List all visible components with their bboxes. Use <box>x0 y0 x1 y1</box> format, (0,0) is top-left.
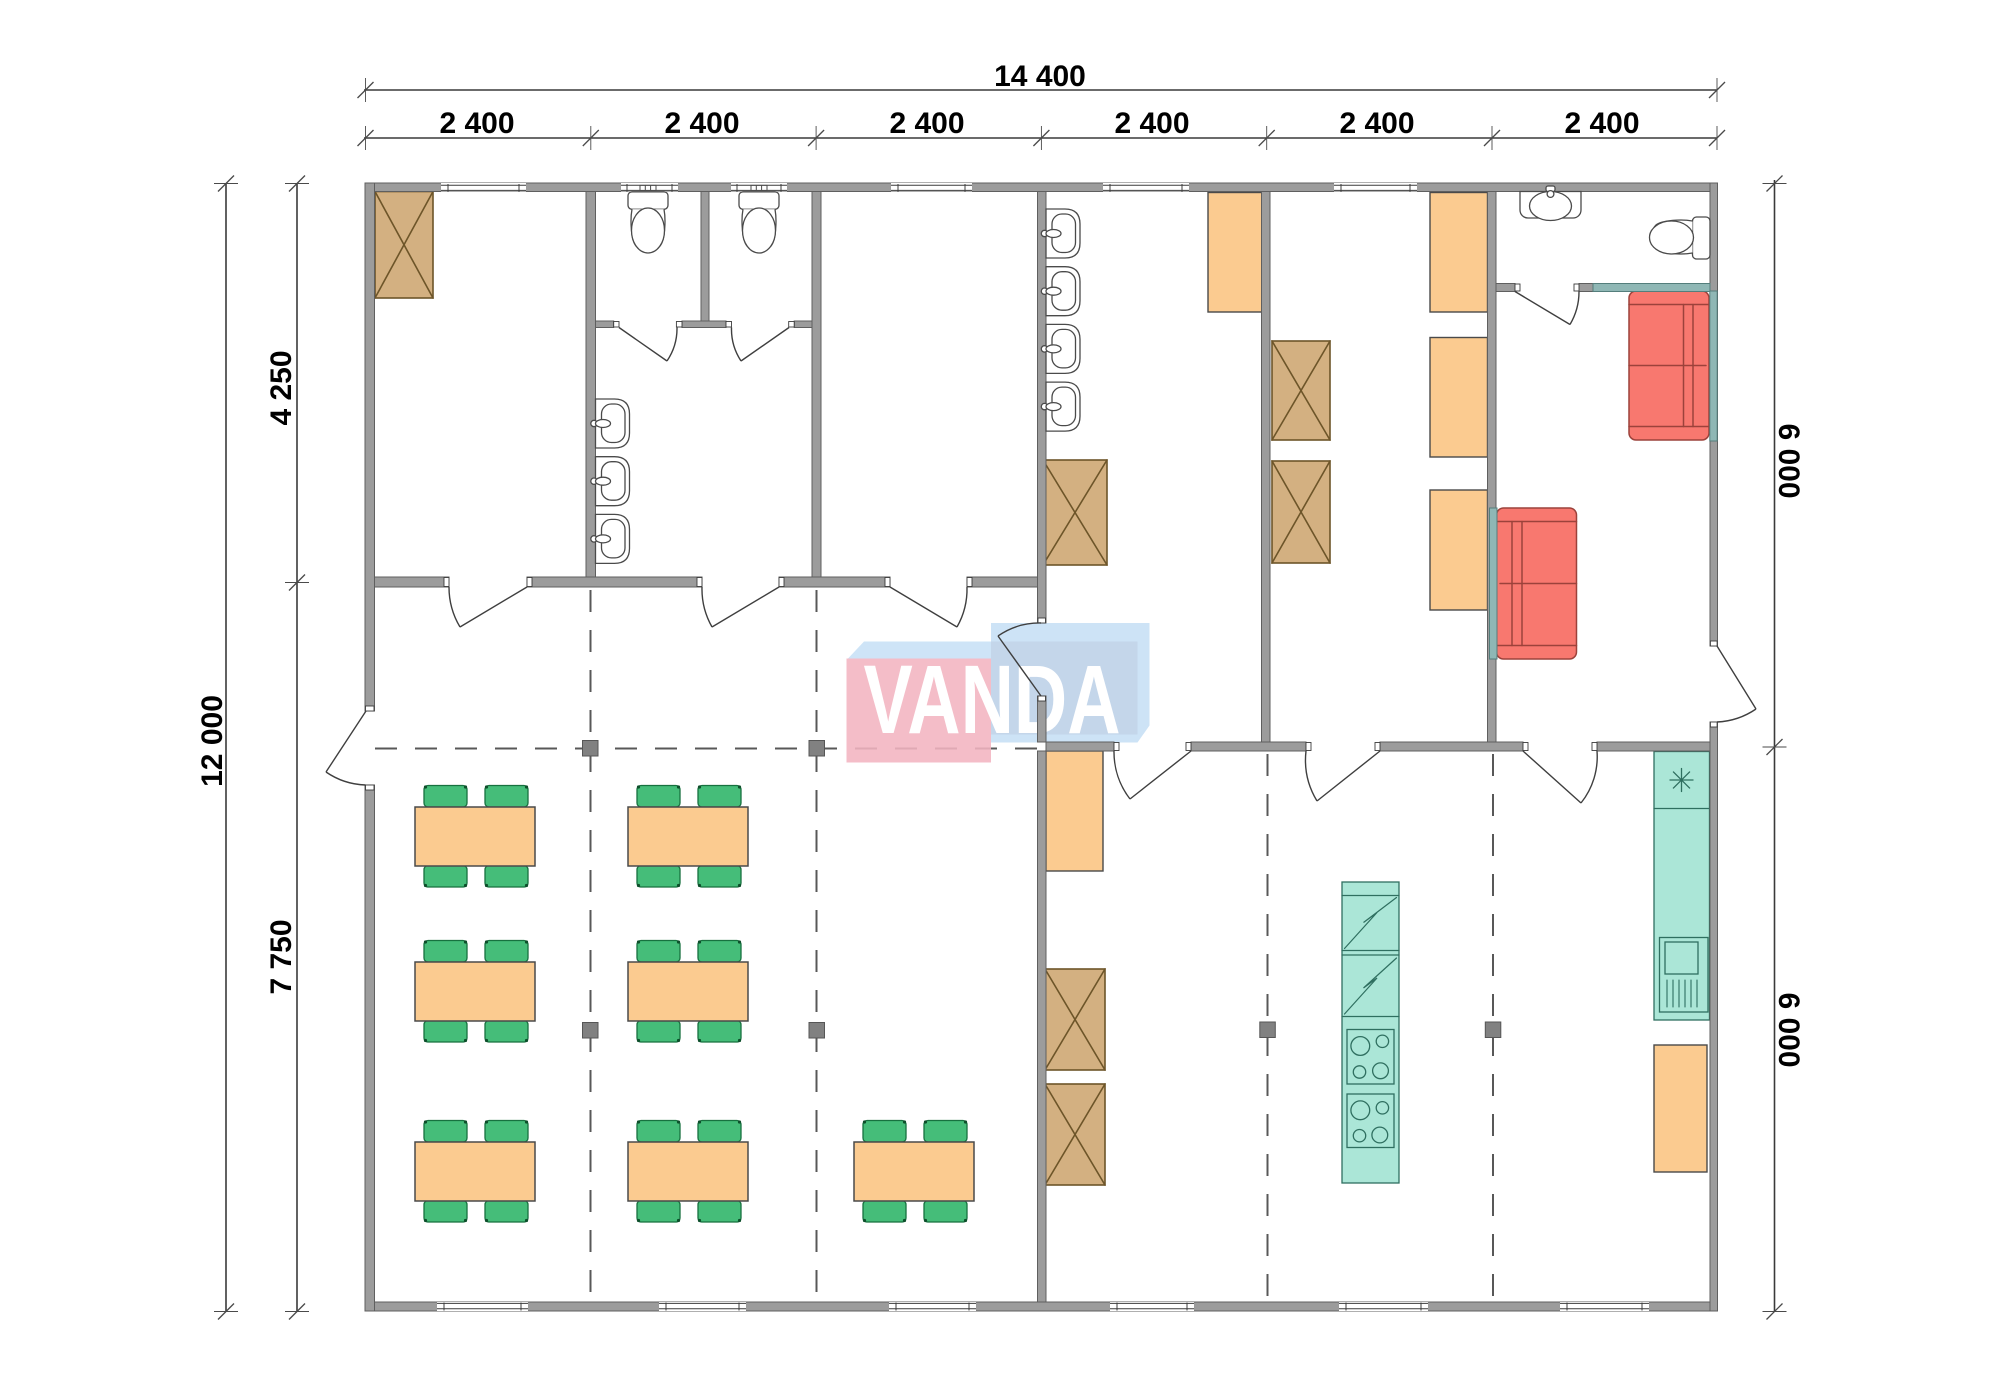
svg-text:6 000: 6 000 <box>1772 423 1805 498</box>
svg-text:2 400: 2 400 <box>664 107 739 140</box>
svg-text:2 400: 2 400 <box>1339 107 1414 140</box>
svg-text:2 400: 2 400 <box>1564 107 1639 140</box>
svg-text:12 000: 12 000 <box>196 695 229 787</box>
svg-text:4 250: 4 250 <box>265 350 298 425</box>
svg-text:6 000: 6 000 <box>1772 992 1805 1067</box>
svg-text:2 400: 2 400 <box>439 107 514 140</box>
svg-text:7 750: 7 750 <box>265 919 298 994</box>
svg-text:2 400: 2 400 <box>1114 107 1189 140</box>
svg-text:2 400: 2 400 <box>889 107 964 140</box>
svg-text:VANDA: VANDA <box>864 645 1121 754</box>
svg-text:14 400: 14 400 <box>994 60 1086 93</box>
